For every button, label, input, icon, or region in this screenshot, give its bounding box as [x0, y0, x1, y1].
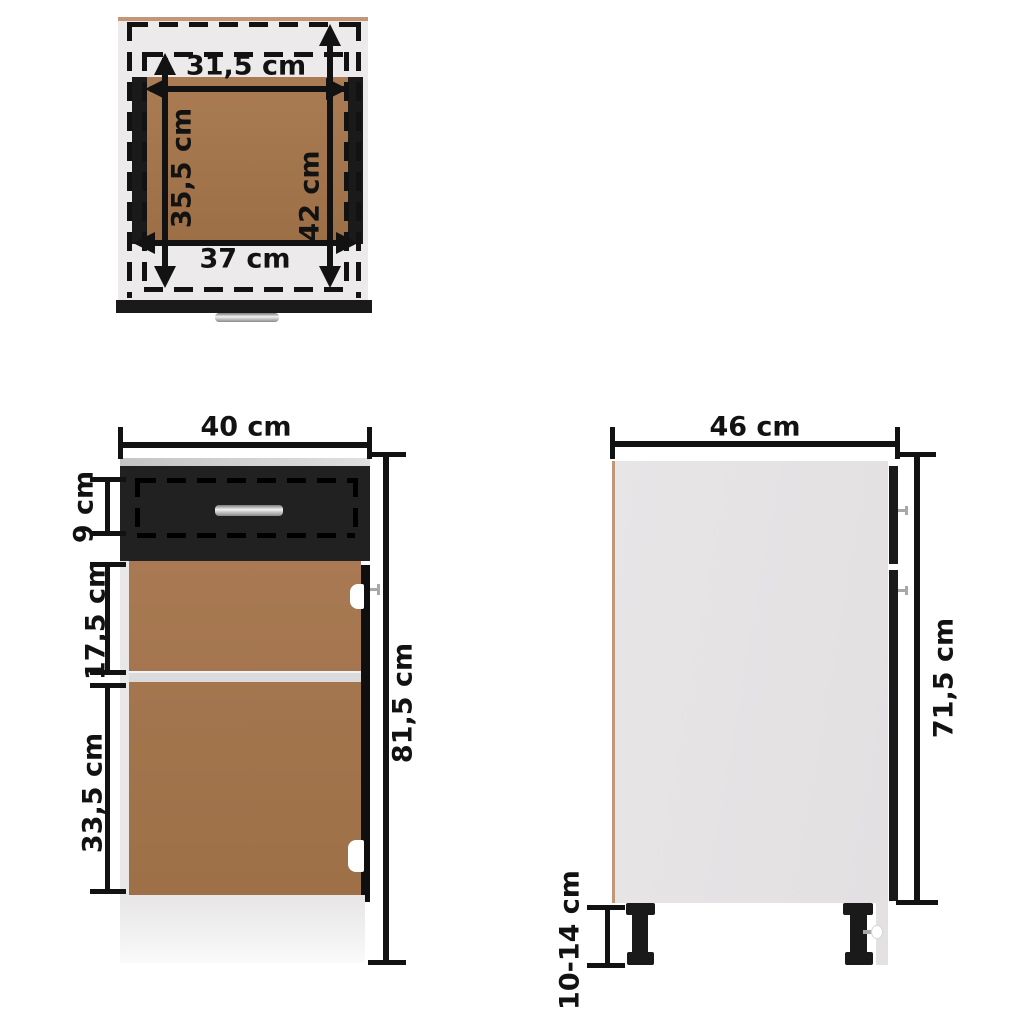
dim-label: 42 cm [297, 150, 324, 241]
dim-label: 33,5 cm [80, 733, 107, 853]
arrowhead-down [154, 266, 176, 288]
tick-bottom [896, 900, 938, 905]
dim-label: 31,5 cm [186, 53, 306, 80]
leg-flange [626, 903, 655, 915]
drawer-handle-pin-head-side [905, 506, 908, 515]
dim-line [914, 457, 920, 903]
side-panel-edge-left [120, 561, 129, 895]
tick-bottom [587, 963, 625, 968]
dim-label: 46 cm [709, 414, 800, 441]
cabinet-base [120, 895, 365, 963]
arrowhead-down [319, 266, 341, 288]
cabinet-top-edge [120, 458, 370, 466]
dim-label: 40 cm [200, 414, 291, 441]
leg-adjuster-knob [871, 925, 883, 939]
door-front-edge [889, 570, 898, 901]
tick-top [90, 683, 126, 688]
drawer-handle-front [215, 505, 283, 516]
dim-line [150, 86, 346, 92]
drawer-dash-top [137, 478, 355, 483]
drawer-handle-top [215, 313, 279, 322]
drawer-front-strip [116, 300, 372, 313]
leg-foot [627, 952, 654, 965]
dim-label: 37 cm [199, 246, 290, 273]
tick-bottom [90, 889, 126, 894]
tick-top [587, 905, 625, 910]
hinge-top [350, 584, 364, 609]
dashed-outline-outer-left [127, 22, 132, 298]
leg-foot [845, 952, 873, 965]
arrowhead-left [133, 232, 155, 254]
dim-line [120, 442, 370, 448]
dashed-outline-outer-right [356, 22, 361, 298]
hinge-bottom [348, 840, 364, 872]
leg-flange [843, 903, 873, 915]
dim-label: 10-14 cm [557, 870, 584, 1010]
drawer-dash-right [353, 478, 358, 538]
leg-stem [850, 915, 867, 954]
cabinet-interior [129, 561, 361, 895]
drawer-front-edge [889, 466, 898, 564]
tick-left [610, 427, 615, 459]
drawer-dash-left [135, 478, 140, 538]
tick-top [896, 452, 936, 457]
tick-top [368, 452, 406, 457]
dim-label: 9 cm [71, 471, 98, 543]
side-panel [612, 461, 888, 903]
dim-line [105, 479, 110, 536]
dim-line [605, 907, 610, 967]
dim-label: 35,5 cm [169, 108, 196, 228]
dimension-diagram: 31,5 cm 35,5 cm 42 cm 37 cm [0, 0, 1024, 1024]
tick-left [118, 427, 123, 459]
dim-label: 81,5 cm [390, 643, 417, 763]
arrowhead-up [154, 53, 176, 75]
door-handle-pin-head [377, 584, 380, 595]
tick-bottom [368, 960, 406, 965]
drawer-dash-bottom [137, 533, 355, 538]
arrowhead-up [319, 24, 341, 46]
dim-label: 17,5 cm [83, 560, 110, 680]
dim-label: 71,5 cm [931, 618, 958, 738]
shelf [129, 671, 361, 682]
leg-stem [632, 915, 648, 954]
arrowhead-right [336, 232, 358, 254]
door-handle-pin-head-side [905, 586, 908, 595]
